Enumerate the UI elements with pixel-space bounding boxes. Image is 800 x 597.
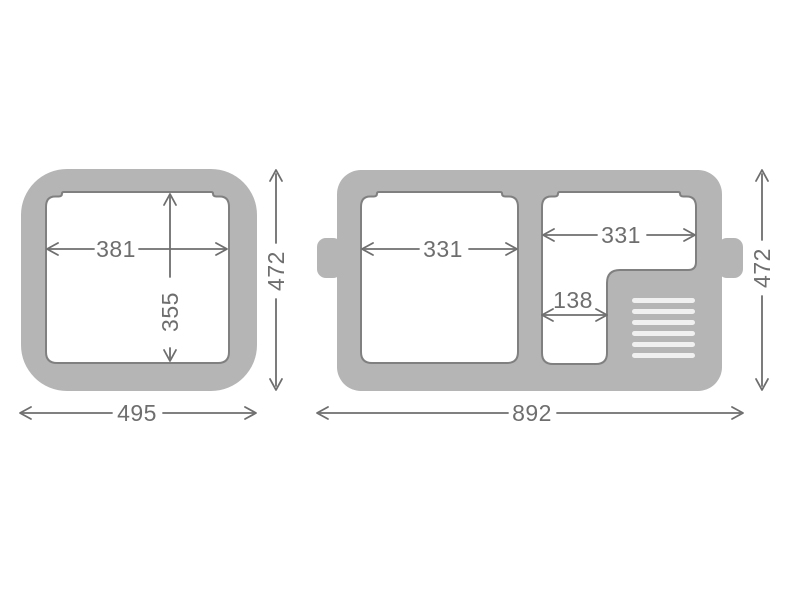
dim-label-right-left-compartment-width: 331 xyxy=(423,236,463,262)
vent-slot xyxy=(632,298,695,303)
dim-label-left-inner-width: 381 xyxy=(96,236,136,262)
diagram-canvas: 381 355 472 xyxy=(0,0,800,597)
dim-label-left-inner-depth: 355 xyxy=(157,292,183,332)
right-unit-left-compartment xyxy=(361,192,518,363)
dim-label-right-outer-depth: 472 xyxy=(749,248,775,288)
left-unit: 381 355 472 xyxy=(20,169,289,426)
dim-label-right-outer-width: 892 xyxy=(512,400,552,426)
dim-label-left-outer-width: 495 xyxy=(117,400,157,426)
vent-slot xyxy=(632,331,695,336)
dim-label-left-outer-depth: 472 xyxy=(263,251,289,291)
vent-slot xyxy=(632,320,695,325)
vent-slot xyxy=(632,342,695,347)
cooler-dimensions-diagram: 381 355 472 xyxy=(0,0,800,597)
left-unit-compartment xyxy=(46,192,229,363)
vent-slot xyxy=(632,353,695,358)
dim-label-right-right-compartment-width: 331 xyxy=(601,222,641,248)
right-unit: 331 331 138 472 xyxy=(317,170,775,426)
dim-label-right-narrow-width: 138 xyxy=(553,287,593,313)
vent-slot xyxy=(632,309,695,314)
